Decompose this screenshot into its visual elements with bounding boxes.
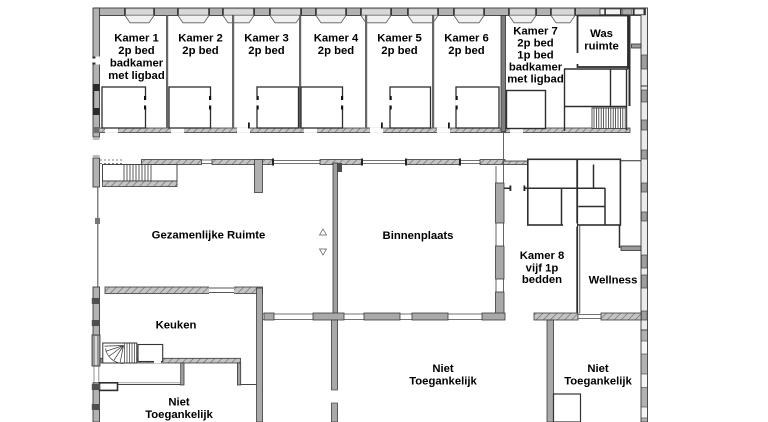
svg-text:ruimte: ruimte bbox=[584, 40, 619, 52]
svg-text:Toegankelijk: Toegankelijk bbox=[564, 376, 632, 388]
svg-text:Kamer 2: Kamer 2 bbox=[178, 33, 223, 45]
svg-text:Kamer 1: Kamer 1 bbox=[114, 32, 159, 44]
svg-text:Kamer 3: Kamer 3 bbox=[244, 33, 289, 45]
svg-text:Kamer 7: Kamer 7 bbox=[513, 25, 558, 37]
svg-text:2p bed: 2p bed bbox=[448, 45, 485, 57]
svg-text:Niet: Niet bbox=[432, 363, 454, 375]
svg-text:Gezamenlijke Ruimte: Gezamenlijke Ruimte bbox=[152, 229, 266, 241]
svg-text:Keuken: Keuken bbox=[156, 319, 197, 331]
svg-text:1p bed: 1p bed bbox=[517, 49, 554, 61]
svg-text:met ligbad: met ligbad bbox=[108, 70, 165, 82]
svg-text:2p bed: 2p bed bbox=[248, 45, 285, 57]
svg-text:Kamer 4: Kamer 4 bbox=[314, 33, 359, 45]
svg-text:2p bed: 2p bed bbox=[381, 45, 418, 57]
svg-text:Was: Was bbox=[590, 28, 613, 40]
svg-text:2p bed: 2p bed bbox=[517, 37, 554, 49]
svg-text:bedden: bedden bbox=[522, 274, 562, 286]
svg-text:Binnenplaats: Binnenplaats bbox=[383, 230, 454, 242]
svg-text:Niet: Niet bbox=[587, 363, 609, 375]
svg-text:met ligbad: met ligbad bbox=[507, 74, 564, 86]
svg-text:2p bed: 2p bed bbox=[118, 45, 155, 57]
svg-text:2p bed: 2p bed bbox=[182, 45, 219, 57]
svg-text:2p bed: 2p bed bbox=[318, 45, 355, 57]
svg-text:Kamer 5: Kamer 5 bbox=[377, 33, 422, 45]
svg-text:badkamer: badkamer bbox=[110, 57, 164, 69]
svg-text:vijf 1p: vijf 1p bbox=[526, 262, 559, 274]
svg-text:Toegankelijk: Toegankelijk bbox=[145, 409, 213, 421]
svg-text:Niet: Niet bbox=[168, 397, 190, 409]
svg-text:Wellness: Wellness bbox=[589, 274, 638, 286]
svg-text:Kamer 8: Kamer 8 bbox=[520, 250, 565, 262]
svg-text:Kamer 6: Kamer 6 bbox=[444, 33, 489, 45]
svg-text:Toegankelijk: Toegankelijk bbox=[409, 375, 477, 387]
svg-text:badkamer: badkamer bbox=[509, 61, 563, 73]
